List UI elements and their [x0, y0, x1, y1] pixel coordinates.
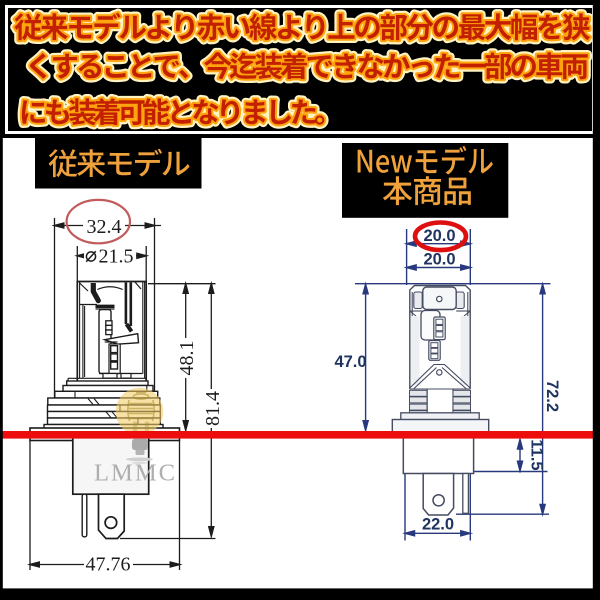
svg-text:81.4: 81.4	[202, 391, 224, 426]
svg-text:LMMC: LMMC	[94, 460, 175, 487]
svg-text:47.76: 47.76	[86, 554, 131, 576]
svg-text:72.2: 72.2	[543, 380, 561, 412]
svg-text:11.5: 11.5	[528, 439, 546, 470]
svg-text:32.4: 32.4	[87, 216, 122, 238]
svg-text:20.0: 20.0	[423, 251, 455, 269]
svg-text:20.0: 20.0	[423, 227, 455, 245]
svg-text:21.5: 21.5	[99, 246, 134, 268]
svg-text:47.0: 47.0	[334, 353, 366, 371]
svg-text:22.0: 22.0	[422, 516, 454, 534]
svg-text:48.1: 48.1	[176, 341, 198, 376]
